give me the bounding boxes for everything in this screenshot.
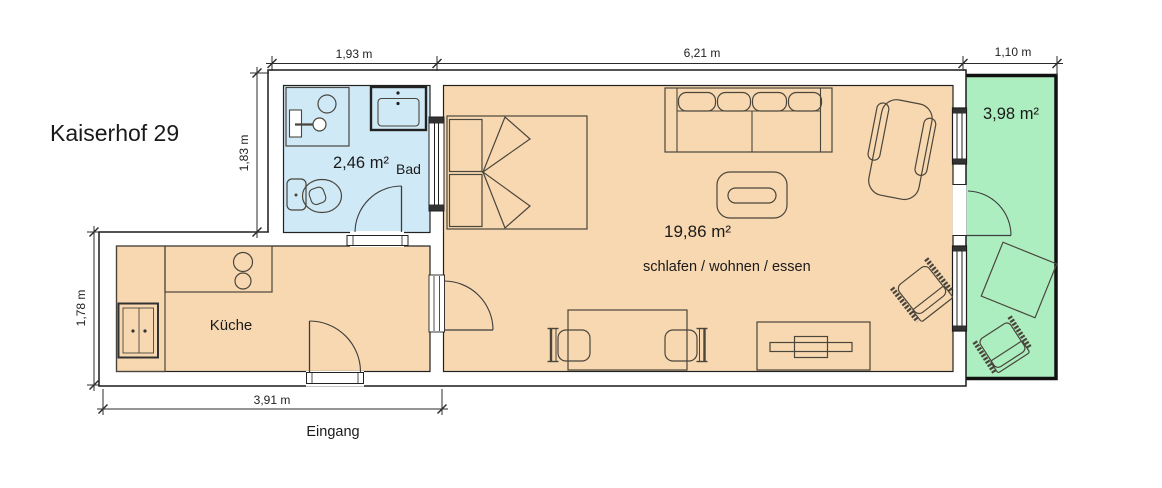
entrance-label: Eingang (306, 424, 359, 440)
balcony-area-label: 3,98 m² (983, 105, 1039, 123)
bathroom-name-label: Bad (396, 161, 421, 177)
dim-label-living-width: 6,21 m (684, 46, 721, 60)
window-icon (953, 246, 967, 331)
interior-window-icon (429, 117, 444, 211)
kitchen-name-label: Küche (210, 317, 253, 334)
window-icon (953, 108, 967, 164)
dim-label-bath-height: 1,83 m (237, 135, 251, 172)
floor-plan-canvas: Kaiserhof 29 1,93 m 6,21 m 1,10 m 1,83 m… (0, 0, 1162, 488)
dim-label-kitchen-width: 3,91 m (254, 393, 291, 407)
living-name-label: schlafen / wohnen / essen (643, 259, 811, 275)
living-area-label: 19,86 m² (664, 222, 731, 241)
plan-title: Kaiserhof 29 (50, 120, 179, 146)
dim-label-balcony-width: 1,10 m (995, 45, 1032, 59)
floor-plan-drawing: Kaiserhof 29 1,93 m 6,21 m 1,10 m 1,83 m… (0, 0, 1162, 488)
kitchen-floor (117, 246, 431, 372)
bathroom-area-label: 2,46 m² (333, 154, 389, 172)
dim-label-bath-width: 1,93 m (336, 47, 373, 61)
dim-label-kitchen-height: 1,78 m (74, 290, 88, 327)
